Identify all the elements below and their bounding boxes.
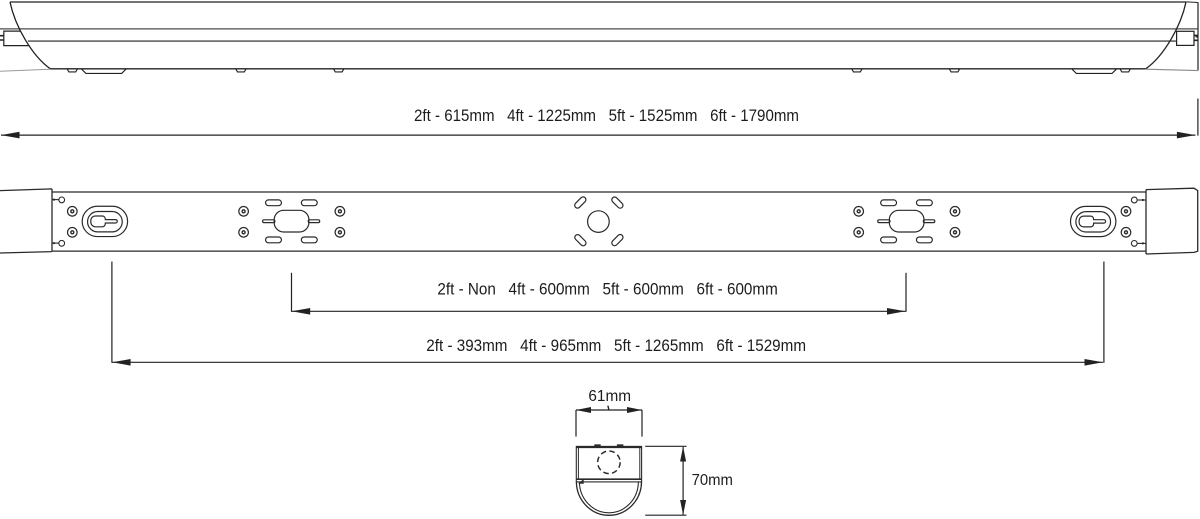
svg-text:2ft - 615mm 4ft - 1225mm 5: 2ft - 615mm 4ft - 1225mm 5ft - 1525mm 6f… [414, 107, 799, 125]
svg-text:2ft - 393mm 4ft - 965mm 5f: 2ft - 393mm 4ft - 965mm 5ft - 1265mm 6ft… [426, 337, 806, 355]
svg-text:70mm: 70mm [692, 472, 733, 489]
svg-text:61mm: 61mm [588, 388, 631, 405]
svg-text:2ft - Non 4ft - 600mm 5ft: 2ft - Non 4ft - 600mm 5ft - 600mm 6ft - … [437, 280, 777, 298]
